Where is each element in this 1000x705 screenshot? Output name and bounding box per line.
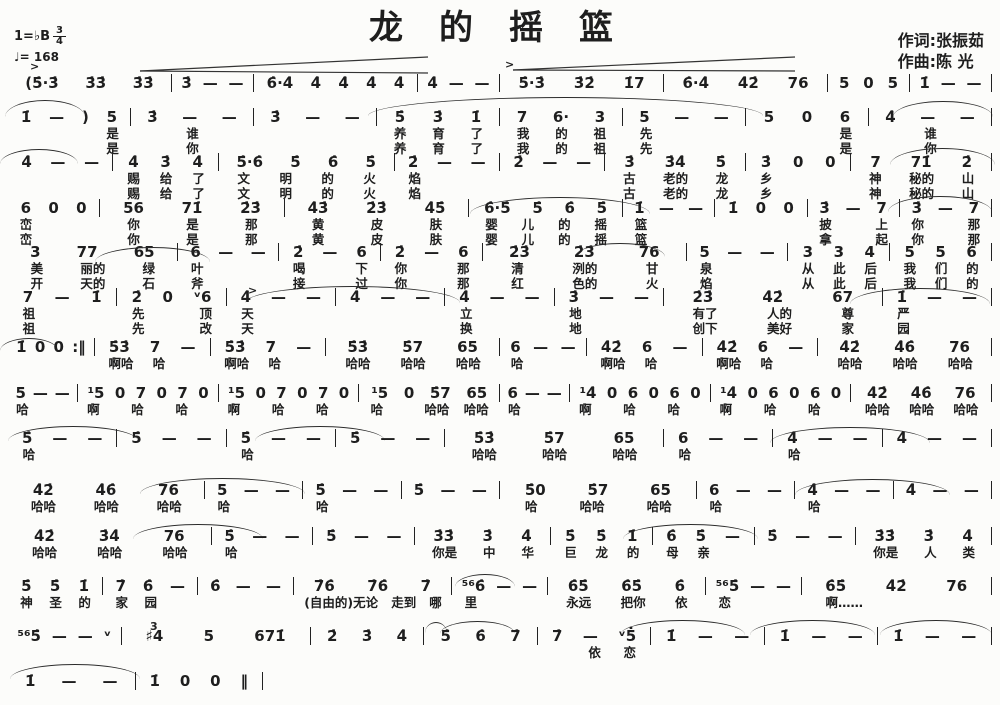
measure: ¹4̇06060啊 哈 哈 xyxy=(570,384,711,417)
note-token: 3̇4̇ xyxy=(98,527,121,545)
lyric-token: 哈哈 xyxy=(893,356,918,371)
lyric-token: 依 xyxy=(588,645,601,660)
note-token: — xyxy=(940,74,957,92)
lyric-token xyxy=(742,402,755,417)
lyrics-row-verse-1 xyxy=(336,306,445,321)
lyric-token xyxy=(550,402,563,417)
measure: 6——叶 斧 xyxy=(178,243,280,291)
notes-row: 6—— xyxy=(697,481,795,499)
note-token: 5̇7 xyxy=(401,338,424,356)
slur-arc xyxy=(368,97,763,116)
note-token: ¹4̇ xyxy=(719,384,738,402)
tempo-marking: ♩= 168 xyxy=(14,50,66,65)
measure: 3̇—— xyxy=(172,74,254,92)
lyric-token: 焰 xyxy=(409,171,422,186)
lyric-token: 立 xyxy=(460,306,473,321)
measure: (5̇·3̇3̇3̇3̇3̇ xyxy=(8,74,172,92)
note-token: 7 xyxy=(22,288,34,306)
lyrics-row-verse-1: 巨龙的 xyxy=(551,545,653,560)
lyrics-row-verse-1: 严 xyxy=(883,306,992,321)
measure: 5̇—— xyxy=(117,429,226,462)
note-token: 7 xyxy=(317,384,329,402)
note-token: — xyxy=(202,74,219,92)
note-token: 76 xyxy=(948,338,971,356)
lyric-token xyxy=(398,402,411,417)
lyric-token: 婴 xyxy=(485,217,498,232)
lyrics-row-verse-1: 谁 xyxy=(869,126,992,141)
note-token: 5̇ xyxy=(365,153,377,171)
lyrics-row-verse-2: 先 改 xyxy=(117,321,226,336)
note-token: 0 xyxy=(824,153,836,171)
note-token: — xyxy=(181,108,198,126)
note-token: 0 xyxy=(47,199,59,217)
slur-arc xyxy=(620,620,745,635)
note-token: ⁵⁶5̇ xyxy=(715,577,741,595)
note-token: — xyxy=(179,338,196,356)
note-token: — xyxy=(235,577,252,595)
lyric-token: 龙 xyxy=(596,545,609,560)
note-token: — xyxy=(521,577,538,595)
lyric-token xyxy=(553,645,566,660)
song-title: 龙的摇篮 xyxy=(351,0,649,49)
measure: ¹4̇06060啊 哈 哈 xyxy=(711,384,852,417)
lyrics-row-verse-1: 天 xyxy=(227,306,336,321)
note-token: 6̇·4̇ xyxy=(266,74,295,92)
lyric-token xyxy=(166,306,179,321)
measure: 5̇—— xyxy=(313,527,415,560)
notes-row: 4̇2̇6— xyxy=(587,338,703,356)
lyric-token: 中 xyxy=(483,545,496,560)
lyrics-row-verse-1: 你是中华 xyxy=(415,545,551,560)
notes-row: 334 xyxy=(788,243,890,261)
system-3: 4̇——4̇3̇4̇赐给了赐给了5̇·6̇5̇6̇5̇文明的火文明的火2̇——焰… xyxy=(8,153,992,201)
note-token: 5̇3̇ xyxy=(346,338,369,356)
lyric-token: 啊 xyxy=(579,402,592,417)
note-token: ᵛ6 xyxy=(192,288,212,306)
lyric-token xyxy=(777,595,790,610)
lyric-token xyxy=(931,321,944,336)
notes-row: 2̇—6 xyxy=(279,243,381,261)
note-token: 6̇5̇ xyxy=(620,577,643,595)
note-token: 0 xyxy=(403,384,415,402)
lyric-token: 峦 xyxy=(20,217,33,232)
sheet-music-page: 龙的摇篮 1=♭B34 ♩= 168 作词:张振茹 作曲:陈 光 (5̇·3̇3… xyxy=(0,0,1000,705)
lyric-token: 儿 xyxy=(522,217,535,232)
note-token: 0 xyxy=(830,384,842,402)
lyric-token xyxy=(903,595,916,610)
lyric-token: 文 xyxy=(238,171,251,186)
note-token: 0 xyxy=(75,199,87,217)
lyrics-row-verse-1: 母亲 xyxy=(653,545,755,560)
lyric-token: 哈 xyxy=(225,545,238,560)
measure: 4̇2̇6—啊哈哈 xyxy=(703,338,819,371)
note-token: 7 xyxy=(176,384,188,402)
time-numerator: 3 xyxy=(53,26,66,36)
lyric-token: 把你 xyxy=(621,595,646,610)
note-token: 0 xyxy=(746,384,758,402)
notes-row: 5̇—— xyxy=(303,481,401,499)
note-token: 6̇ xyxy=(142,577,154,595)
note-token: 5 xyxy=(887,74,899,92)
lyric-token xyxy=(763,261,776,276)
measure: 4̇2̇4̇6̇76哈哈哈哈哈哈 xyxy=(818,338,992,371)
notes-row: 2̇—— xyxy=(395,153,500,171)
composer-credit: 作曲:陈 光 xyxy=(898,51,984,72)
lyric-token: 哈 xyxy=(272,402,285,417)
note-token: 0 xyxy=(114,384,126,402)
measure: 4̇3̇4̇赐给了赐给了 xyxy=(113,153,218,201)
measure: 5——哈 xyxy=(8,384,78,417)
measure: 2̇—6喝 下接 过 xyxy=(279,243,381,291)
lyrics-row-verse-2: 换 xyxy=(445,321,554,336)
lyric-token: 叶 xyxy=(191,261,204,276)
note-token: 6 xyxy=(509,338,521,356)
note-token: — xyxy=(440,481,457,499)
lyric-token xyxy=(174,595,187,610)
lyric-token: 哈 xyxy=(175,402,188,417)
slur-arc xyxy=(440,621,515,634)
lyric-token: 祖 xyxy=(23,306,36,321)
lyric-token: 的 xyxy=(966,261,979,276)
lyric-token: 老的 xyxy=(663,171,688,186)
lyric-token: 哈 xyxy=(764,402,777,417)
lyric-token: 我 xyxy=(904,261,917,276)
note-token: 0 xyxy=(296,384,308,402)
note-token: 5̇ xyxy=(595,527,607,545)
note-token: 5̇ xyxy=(240,429,252,447)
notes-row: 7̇6̇7̇6̇7̇ xyxy=(294,577,453,595)
lyrics-row-verse-1: 篮 xyxy=(623,217,715,232)
note-token: 76 xyxy=(787,74,810,92)
note-token: ♯4 xyxy=(145,627,165,645)
lyrics-row-verse-1: 你 那 xyxy=(900,217,992,232)
measure: 2̇0ᵛ6先 顶先 改 xyxy=(117,288,226,336)
note-token: — xyxy=(966,74,983,92)
note-token: 5 xyxy=(14,384,26,402)
note-token: 5̇ xyxy=(20,577,32,595)
lyric-token xyxy=(338,402,351,417)
note-token: — xyxy=(344,108,361,126)
lyric-token: 哈 xyxy=(760,356,773,371)
note-token: 2̇ xyxy=(131,288,143,306)
lyrics-row-verse-1: 先 顶 xyxy=(117,306,226,321)
slur-arc xyxy=(455,574,515,587)
lyric-token xyxy=(603,306,616,321)
lyric-token: 摇 xyxy=(595,217,608,232)
lyrics-row-verse-1: 哈 xyxy=(227,447,336,462)
note-token: :‖ xyxy=(71,338,87,356)
note-token: — xyxy=(196,429,213,447)
lyric-token: 换 xyxy=(460,321,473,336)
lyric-token: 啊哈 xyxy=(224,356,249,371)
measure: 7̇6̇—家园 xyxy=(103,577,198,610)
lyric-token: 此 xyxy=(833,261,846,276)
note-token: 0 xyxy=(788,384,800,402)
lyric-token xyxy=(309,447,322,462)
notes-row: 5̇—— xyxy=(313,527,415,545)
lyric-token: 哈哈 xyxy=(401,356,426,371)
lyric-token xyxy=(275,306,288,321)
measure: 5̇3̇7—啊哈哈 xyxy=(95,338,211,371)
slur-arc xyxy=(750,620,875,635)
measure: ♯45671̇ xyxy=(122,627,311,660)
lyrics-row-verse-1: 哈哈哈哈哈哈 xyxy=(326,356,500,371)
notes-row: 3̇—— xyxy=(254,108,377,126)
notes-row: 5̇3̇5̇765 xyxy=(326,338,500,356)
lyric-token xyxy=(109,402,122,417)
notes-row: ¹507070 xyxy=(78,384,219,402)
note-token: 4̇6̇ xyxy=(910,384,933,402)
note-token: 7 xyxy=(275,384,287,402)
lyrics-row-verse-1: 恋 xyxy=(706,595,801,610)
lyric-token: 创下 xyxy=(693,321,718,336)
lyric-token: 哈 xyxy=(645,356,658,371)
lyricist-credit: 作词:张振茹 xyxy=(898,30,984,51)
notes-row: 3̇—7 xyxy=(808,199,900,217)
note-token: 4̇ xyxy=(192,153,204,171)
note-token: 6 xyxy=(839,108,851,126)
note-token: 5 xyxy=(698,243,710,261)
note-token: — xyxy=(77,627,94,645)
lyrics-row-verse-1: 养育了 xyxy=(377,126,500,141)
lyrics-row-verse-1: (自由的)无论走到哪 xyxy=(294,595,453,610)
system-6: 7—1̇祖 祖 2̇0ᵛ6先 顶先 改4̇——天 天 4̇——4̇——立 换 3… xyxy=(8,288,992,336)
note-token: — xyxy=(560,338,577,356)
lyric-token: 先 xyxy=(640,126,653,141)
measure: 3̇3̇3̇4̇你是中华 xyxy=(415,527,551,560)
lyrics-row-verse-1: 神圣的 xyxy=(8,595,103,610)
notes-row: 4̇2̇4̇6̇76 xyxy=(851,384,992,402)
lyrics-row-verse-1: 哈哈哈哈哈哈 xyxy=(445,447,664,462)
note-token: 2̇3̇ xyxy=(691,288,714,306)
lyric-token: 哈 xyxy=(218,499,231,514)
lyric-token: 哈哈 xyxy=(345,356,370,371)
notes-row: 4̇2̇4̇6̇76 xyxy=(818,338,992,356)
note-token: ‖ xyxy=(240,672,250,690)
lyric-token xyxy=(792,171,805,186)
notes-row: 2̇0ᵛ6 xyxy=(117,288,226,306)
note-token: 2̇ xyxy=(394,243,406,261)
lyric-token: 哈 xyxy=(667,402,680,417)
note-token: 4̇2̇ xyxy=(866,384,889,402)
lyrics-row-verse-2: 天 xyxy=(227,321,336,336)
lyric-token xyxy=(441,171,454,186)
measure: 7—1̇祖 祖 xyxy=(8,288,117,336)
measure: 2̇3̇4̇2̇67有了人的尊创下美好家 xyxy=(664,288,883,336)
note-token: — xyxy=(217,243,234,261)
notes-row: 5671̇2̇3̇ xyxy=(100,199,285,217)
note-token: 6 xyxy=(457,243,469,261)
lyric-token: 哈哈 xyxy=(94,499,119,514)
lyrics-row-verse-1: 啊 哈 哈 xyxy=(219,402,360,417)
note-token: 71̇ xyxy=(181,199,204,217)
lyric-token xyxy=(56,447,69,462)
lyric-token: 哈哈 xyxy=(865,402,890,417)
note-token: — xyxy=(775,577,792,595)
note-token: — xyxy=(436,153,453,171)
lyric-token: 啊…… xyxy=(825,595,863,610)
measure: 6——哈 xyxy=(500,384,570,417)
lyric-token: 哈哈 xyxy=(647,499,672,514)
note-token: — xyxy=(372,481,389,499)
note-token: ¹4̇ xyxy=(578,384,597,402)
note-token: 0 xyxy=(209,672,221,690)
lyric-token xyxy=(49,126,62,141)
lyric-token xyxy=(801,126,814,141)
lyric-token: 的 xyxy=(78,595,91,610)
note-token: — xyxy=(161,429,178,447)
lyric-token xyxy=(37,402,50,417)
note-token: ¹5 xyxy=(227,384,246,402)
key-text: 1=♭B xyxy=(14,29,50,44)
lyric-token: 严 xyxy=(897,306,910,321)
lyric-token xyxy=(309,321,322,336)
lyric-token: 哈 xyxy=(511,356,524,371)
note-token: 76 xyxy=(945,577,968,595)
lyric-token: 你是 xyxy=(432,545,457,560)
lyric-token xyxy=(275,447,288,462)
lyric-token: 篮 xyxy=(635,217,648,232)
lyric-token xyxy=(494,595,507,610)
note-token: ⁵⁶5̇ xyxy=(16,627,42,645)
note-token: 4̇2̇ xyxy=(33,527,56,545)
lyric-token xyxy=(678,126,691,141)
note-token: — xyxy=(582,627,599,645)
lyrics-row-verse-1: 是 xyxy=(8,126,131,141)
lyric-token xyxy=(676,356,689,371)
lyric-token: 我 xyxy=(517,126,530,141)
note-token: 5 xyxy=(763,108,775,126)
lyric-token xyxy=(637,306,650,321)
notes-row: 2̇—— xyxy=(500,153,605,171)
measure: 5̇——哈 xyxy=(303,481,401,514)
measure: 6——哈 xyxy=(500,338,587,371)
lyric-token: 华 xyxy=(521,545,534,560)
lyrics-row-verse-1 xyxy=(402,499,500,514)
lyric-token xyxy=(965,321,978,336)
lyrics-row-verse-1 xyxy=(198,595,293,610)
note-token: 3̇ xyxy=(180,74,192,92)
lyric-token: 肤 xyxy=(430,217,443,232)
note-token: — xyxy=(169,577,186,595)
note-token: 6 xyxy=(20,199,32,217)
note-token: — xyxy=(707,429,724,447)
lyric-token: 先 xyxy=(132,306,145,321)
time-denominator: 4 xyxy=(53,36,66,47)
lyrics-row-verse-1 xyxy=(336,447,445,462)
note-token: 6 xyxy=(757,338,769,356)
note-token: 76 xyxy=(954,384,977,402)
system-7: 1̇00:‖5̇3̇7—啊哈哈 5̇3̇7—啊哈哈 5̇3̇5̇765哈哈哈哈哈… xyxy=(8,338,992,371)
lyrics-row-verse-1 xyxy=(500,171,605,186)
measure: 556我们的我们的 xyxy=(890,243,992,291)
lyric-token: 哈 xyxy=(371,402,384,417)
lyric-token xyxy=(637,321,650,336)
lyric-token xyxy=(48,217,61,232)
lyrics-row-verse-1: 哈哈哈哈哈哈 xyxy=(851,402,992,417)
note-token: 3̇3̇ xyxy=(84,74,107,92)
note-token: — xyxy=(575,153,592,171)
lyrics-row-verse-1: 啊 哈 哈 xyxy=(711,402,852,417)
lyric-token: 哈哈 xyxy=(32,545,57,560)
lyric-token: 养 xyxy=(394,126,407,141)
note-token: — xyxy=(961,429,978,447)
note-token: 4̇ xyxy=(458,288,470,306)
note-token: 6̇ xyxy=(674,577,686,595)
lyric-token: 你是 xyxy=(873,545,898,560)
note-token: — xyxy=(524,384,541,402)
lyric-token: 啊 xyxy=(228,402,241,417)
lyrics-row-verse-1: 文明的火 xyxy=(219,171,395,186)
note-token: 4̇2̇ xyxy=(716,338,739,356)
lyrics-row-verse-1: 里 xyxy=(452,595,547,610)
note-token: 4̇2̇ xyxy=(761,288,784,306)
lyric-token xyxy=(955,595,968,610)
note-token: 2̇ xyxy=(292,243,304,261)
lyrics-row-verse-1: 你 那 xyxy=(381,261,483,276)
lyric-token: 地 xyxy=(569,306,582,321)
lyric-token xyxy=(250,402,263,417)
lyric-token: 古 xyxy=(623,171,636,186)
lyric-token: 地 xyxy=(569,321,582,336)
lyric-token: 山 xyxy=(962,171,975,186)
note-token: 3̇4̇ xyxy=(664,153,687,171)
measure: 5̇—— xyxy=(402,481,500,514)
lyric-token: 恋 xyxy=(719,595,732,610)
lyric-token xyxy=(847,217,860,232)
notes-row: 6̇·4̇4̇4̇4̇4̇ xyxy=(254,74,418,92)
measure: 5̇5̇1̇神圣的 xyxy=(8,577,103,610)
lyric-token: 哈 xyxy=(268,356,281,371)
measure: 5——泉 焰 xyxy=(687,243,789,291)
notes-row: 5̇·6̇5̇6̇5̇ xyxy=(219,153,395,171)
note-token: 4̇ xyxy=(393,74,405,92)
note-token: 1̇ xyxy=(727,199,739,217)
lyric-token: 哈 xyxy=(16,402,29,417)
lyric-token xyxy=(529,402,542,417)
note-token: 5̇ xyxy=(49,577,61,595)
lyrics-row-verse-1: 赐给了 xyxy=(113,171,218,186)
note-token: 1̇ xyxy=(918,74,930,92)
lyric-token: 清 xyxy=(511,261,524,276)
note-token: — xyxy=(304,108,321,126)
note-token: — xyxy=(541,153,558,171)
note-token: 6 xyxy=(677,429,689,447)
notes-row: 5̇—— xyxy=(402,481,500,499)
lyric-token: 是 xyxy=(106,126,119,141)
lyric-token xyxy=(712,447,725,462)
note-token: — xyxy=(295,338,312,356)
notes-row: ⁵⁶5̇——ᵛ xyxy=(8,627,122,645)
lyric-token: 的 xyxy=(321,171,334,186)
lyric-token xyxy=(222,261,235,276)
measure: 600峦 峦 xyxy=(8,199,100,247)
note-token: 4̇ xyxy=(884,108,896,126)
notes-row: (5̇·3̇3̇3̇3̇3̇ xyxy=(8,74,172,92)
lyric-token: 美 xyxy=(31,261,44,276)
measure: 4̇3̇2̇3̇4̇5̇黄皮肤黄皮肤 xyxy=(285,199,470,247)
note-token: — xyxy=(321,243,338,261)
lyrics-row-verse-1: 神秘的山 xyxy=(851,171,992,186)
lyrics-row-verse-1: 依恋 xyxy=(538,645,652,660)
lyrics-row-verse-1 xyxy=(8,356,95,371)
note-token: 6̇5̇ xyxy=(824,577,847,595)
notes-row: 1̇—— xyxy=(910,74,992,92)
lyrics-row-verse-1: 立 xyxy=(445,306,554,321)
notes-row: 5̇3̇5̇765 xyxy=(445,429,664,447)
lyric-token: 是 xyxy=(186,217,199,232)
note-token: — xyxy=(658,199,675,217)
